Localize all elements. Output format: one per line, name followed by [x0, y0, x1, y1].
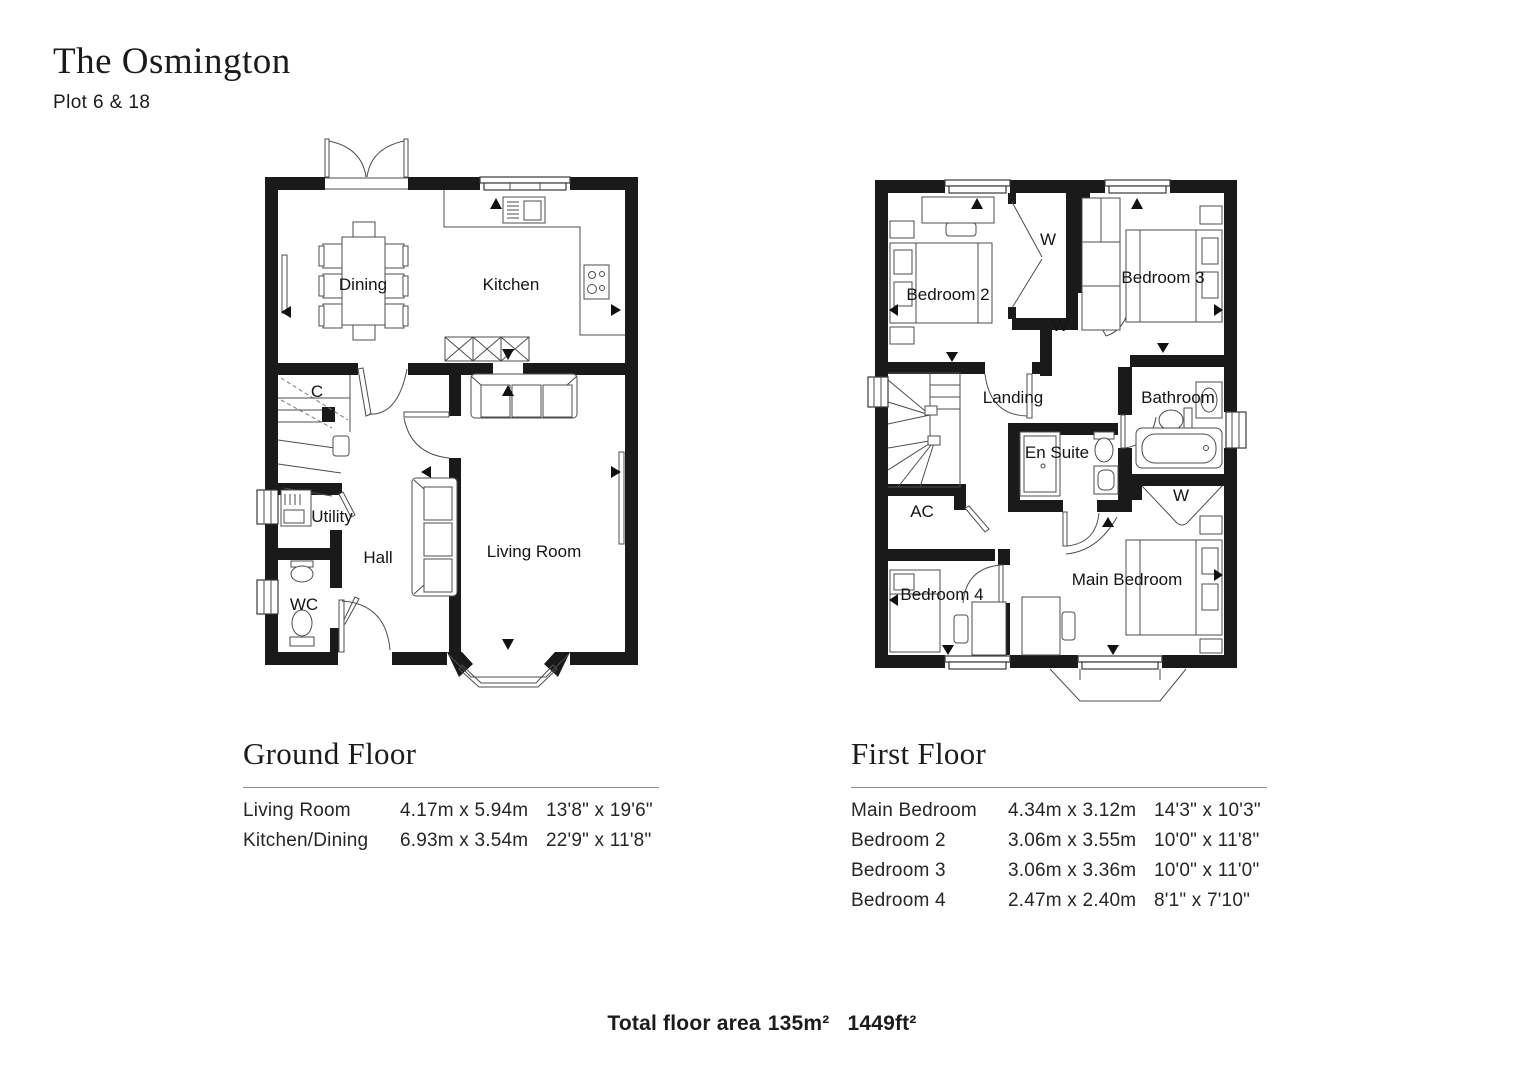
first-floor-plan: Bedroom 2 W Bedroom 3 W Landing Bathroom…	[860, 130, 1250, 710]
room-name: Main Bedroom	[851, 796, 1008, 826]
bathroom-label: Bathroom	[1141, 388, 1215, 407]
ground-spec-divider	[243, 787, 659, 788]
wardrobe2-label: W	[1052, 316, 1068, 335]
living-room-furniture	[412, 374, 624, 596]
bedroom4-label: Bedroom 4	[900, 585, 983, 604]
total-area-imperial: 1449ft²	[847, 1012, 916, 1035]
first-stairs	[888, 373, 960, 487]
room-size-imperial: 14'3" x 10'3"	[1154, 796, 1267, 826]
bedroom3-furniture	[1082, 198, 1222, 330]
room-size-metric: 4.17m x 5.94m	[400, 796, 546, 826]
landing-label: Landing	[983, 388, 1044, 407]
room-name: Bedroom 4	[851, 886, 1008, 916]
room-size-metric: 3.06m x 3.55m	[1008, 826, 1154, 856]
table-row: Bedroom 2 3.06m x 3.55m 10'0" x 11'8"	[851, 826, 1267, 856]
page-title: The Osmington	[53, 42, 291, 83]
wc-label: WC	[290, 595, 318, 614]
main-bedroom-label: Main Bedroom	[1072, 570, 1183, 589]
total-floor-area: Total floor area135m²1449ft²	[0, 1012, 1524, 1036]
dining-label: Dining	[339, 275, 387, 294]
room-name: Living Room	[243, 796, 400, 826]
room-name: Bedroom 2	[851, 826, 1008, 856]
title-block: The Osmington Plot 6 & 18	[53, 42, 291, 114]
total-area-metric: 135m²	[768, 1012, 830, 1035]
room-size-metric: 6.93m x 3.54m	[400, 826, 546, 856]
bedroom2-label: Bedroom 2	[906, 285, 989, 304]
kitchen-label: Kitchen	[483, 275, 540, 294]
ground-floor-spec: Ground Floor Living Room 4.17m x 5.94m 1…	[243, 736, 659, 856]
ac-label: AC	[910, 502, 934, 521]
room-size-imperial: 13'8" x 19'6"	[546, 796, 659, 826]
floorplan-page: { "header": { "title": "The Osmington", …	[0, 0, 1524, 1080]
bedroom4-furniture	[890, 570, 1006, 655]
bedroom2-furniture	[890, 197, 994, 344]
cupboard-label: C	[311, 382, 323, 401]
room-size-metric: 2.47m x 2.40m	[1008, 886, 1154, 916]
hall-label: Hall	[363, 548, 392, 567]
table-row: Bedroom 4 2.47m x 2.40m 8'1" x 7'10"	[851, 886, 1267, 916]
room-size-metric: 3.06m x 3.36m	[1008, 856, 1154, 886]
bedroom3-label: Bedroom 3	[1121, 268, 1204, 287]
room-size-metric: 4.34m x 3.12m	[1008, 796, 1154, 826]
room-size-imperial: 8'1" x 7'10"	[1154, 886, 1267, 916]
first-spec-divider	[851, 787, 1267, 788]
first-floor-spec: First Floor Main Bedroom 4.34m x 3.12m 1…	[851, 736, 1267, 916]
room-name: Bedroom 3	[851, 856, 1008, 886]
room-size-imperial: 10'0" x 11'0"	[1154, 856, 1267, 886]
table-row: Living Room 4.17m x 5.94m 13'8" x 19'6"	[243, 796, 659, 826]
plot-subtitle: Plot 6 & 18	[53, 92, 291, 114]
wardrobe3-label: W	[1173, 486, 1189, 505]
wardrobe1-label: W	[1040, 230, 1056, 249]
ground-floor-plan: Dining Kitchen C Utility Hall WC Living …	[250, 130, 640, 710]
living-room-label: Living Room	[487, 542, 582, 561]
first-bay-outline	[1050, 669, 1186, 701]
table-row: Main Bedroom 4.34m x 3.12m 14'3" x 10'3"	[851, 796, 1267, 826]
table-row: Kitchen/Dining 6.93m x 3.54m 22'9" x 11'…	[243, 826, 659, 856]
room-name: Kitchen/Dining	[243, 826, 400, 856]
utility-fittings	[281, 490, 311, 526]
ground-floor-heading: Ground Floor	[243, 736, 659, 772]
utility-label: Utility	[311, 507, 353, 526]
room-size-imperial: 10'0" x 11'8"	[1154, 826, 1267, 856]
ensuite-fittings	[1020, 432, 1118, 496]
ensuite-label: En Suite	[1025, 443, 1089, 462]
french-doors	[325, 139, 408, 189]
table-row: Bedroom 3 3.06m x 3.36m 10'0" x 11'0"	[851, 856, 1267, 886]
first-floor-heading: First Floor	[851, 736, 1267, 772]
total-area-label: Total floor area	[607, 1012, 760, 1035]
room-size-imperial: 22'9" x 11'8"	[546, 826, 659, 856]
